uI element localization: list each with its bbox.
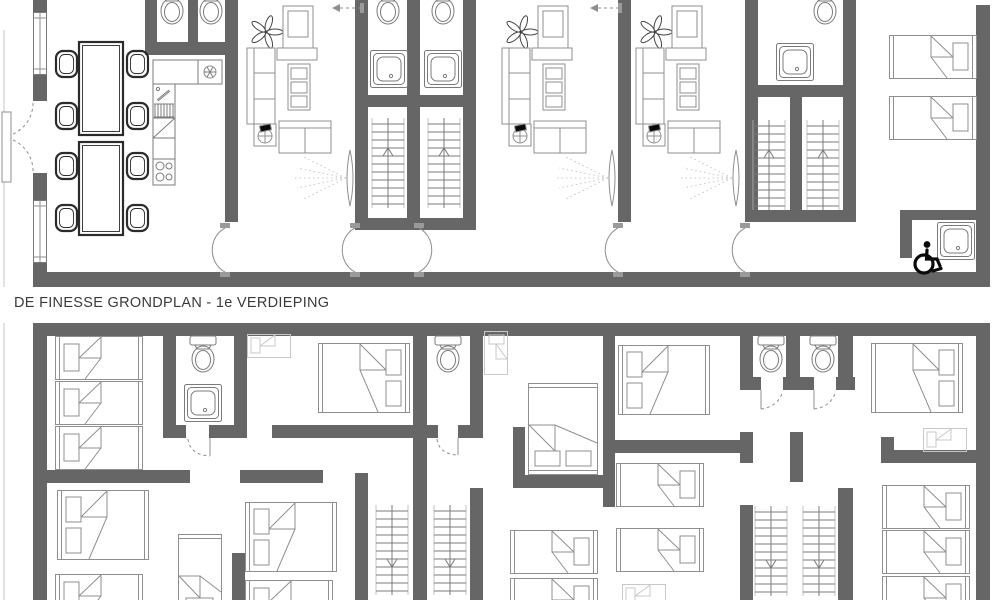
double-bed-icon bbox=[872, 344, 963, 413]
chair-icon bbox=[127, 153, 148, 179]
toilet-icon bbox=[758, 336, 784, 372]
single-bed-icon bbox=[56, 337, 143, 380]
single-bed-icon bbox=[890, 36, 977, 79]
single-bed-icon bbox=[883, 486, 970, 529]
stove-icon bbox=[153, 159, 175, 185]
living-room bbox=[636, 6, 720, 153]
stairs-down-icon bbox=[376, 505, 408, 595]
bottom-floor-plan bbox=[3, 323, 990, 600]
shower-icon bbox=[371, 51, 408, 88]
door-swing-icon bbox=[212, 223, 230, 277]
single-bed-faint-icon bbox=[924, 429, 967, 452]
chair-icon bbox=[127, 103, 148, 129]
living-room bbox=[247, 6, 331, 153]
double-bed-icon bbox=[619, 346, 710, 415]
radiator-icon bbox=[295, 150, 353, 206]
double-bed-icon bbox=[246, 503, 337, 572]
shower-icon bbox=[185, 385, 222, 422]
chair-icon bbox=[56, 103, 77, 129]
single-bed-icon bbox=[56, 575, 143, 600]
toilet-icon bbox=[159, 0, 185, 24]
double-bed-icon bbox=[319, 344, 410, 413]
cabinet bbox=[153, 138, 175, 159]
floor-plan-drawing bbox=[0, 0, 1000, 600]
door-swing-icon bbox=[761, 390, 836, 409]
dining-area bbox=[56, 42, 148, 235]
door-swing-icon bbox=[437, 438, 458, 455]
chair-icon bbox=[127, 205, 148, 231]
single-bed-faint-icon bbox=[248, 335, 291, 358]
dining-table-icon bbox=[79, 142, 123, 235]
door-swing-icon bbox=[732, 223, 750, 277]
radiator-icon bbox=[557, 150, 615, 206]
single-bed-icon bbox=[511, 531, 598, 574]
single-bed-icon bbox=[617, 529, 704, 572]
toilet-icon bbox=[435, 336, 461, 372]
walls bbox=[33, 0, 990, 287]
window-icon bbox=[34, 201, 47, 263]
double-bed-icon bbox=[529, 384, 598, 475]
toilet-icon bbox=[430, 0, 456, 24]
single-bed-icon bbox=[883, 531, 970, 574]
porch bbox=[2, 112, 11, 182]
shower-icon bbox=[938, 223, 975, 260]
toilet-icon bbox=[375, 0, 401, 24]
counter-icon bbox=[153, 60, 198, 84]
door-swing-icon bbox=[188, 438, 210, 456]
single-bed-faint-icon bbox=[485, 332, 508, 375]
fridge-icon bbox=[198, 60, 222, 84]
toilet-icon bbox=[810, 336, 836, 372]
single-bed-icon bbox=[179, 535, 222, 600]
stairs-up-icon bbox=[807, 120, 839, 210]
entrance-double-door bbox=[1, 103, 33, 182]
kitchen bbox=[153, 60, 222, 185]
chair-icon bbox=[56, 51, 77, 77]
stairs-up-icon bbox=[428, 118, 460, 208]
door-swing-icon bbox=[342, 223, 360, 277]
single-bed-icon bbox=[56, 382, 143, 425]
shower-icon bbox=[425, 51, 462, 88]
single-bed-faint-icon bbox=[623, 585, 666, 600]
walls bbox=[33, 323, 990, 600]
single-bed-icon bbox=[890, 97, 977, 140]
floor-plan-page: DE FINESSE GRONDPLAN - 1e VERDIEPING bbox=[0, 0, 1000, 600]
single-bed-icon bbox=[883, 577, 970, 600]
shower-icon bbox=[777, 44, 814, 81]
single-bed-icon bbox=[617, 464, 704, 507]
living-room bbox=[502, 6, 586, 153]
dining-table-icon bbox=[79, 42, 123, 135]
single-bed-icon bbox=[511, 579, 598, 600]
chair-icon bbox=[127, 51, 148, 77]
single-bed-icon bbox=[246, 581, 333, 600]
stairs-down-icon bbox=[434, 505, 466, 595]
top-floor-plan bbox=[1, 0, 990, 287]
door-swing-icon bbox=[414, 223, 432, 277]
double-bed-icon bbox=[58, 491, 149, 560]
stairs-down-icon bbox=[755, 506, 787, 596]
door-swing-icon bbox=[590, 3, 622, 13]
single-bed-icon bbox=[56, 427, 143, 470]
stairs-down-icon bbox=[803, 506, 835, 596]
radiator-icon bbox=[681, 150, 739, 206]
toilet-icon bbox=[190, 336, 216, 372]
stairs-up-icon bbox=[372, 118, 404, 208]
chair-icon bbox=[56, 153, 77, 179]
door-swing-icon bbox=[605, 223, 623, 277]
window-icon bbox=[34, 13, 47, 75]
toilet-icon bbox=[198, 0, 224, 24]
toilet-icon bbox=[812, 0, 838, 24]
chair-icon bbox=[56, 205, 77, 231]
sink-icon bbox=[153, 84, 175, 118]
